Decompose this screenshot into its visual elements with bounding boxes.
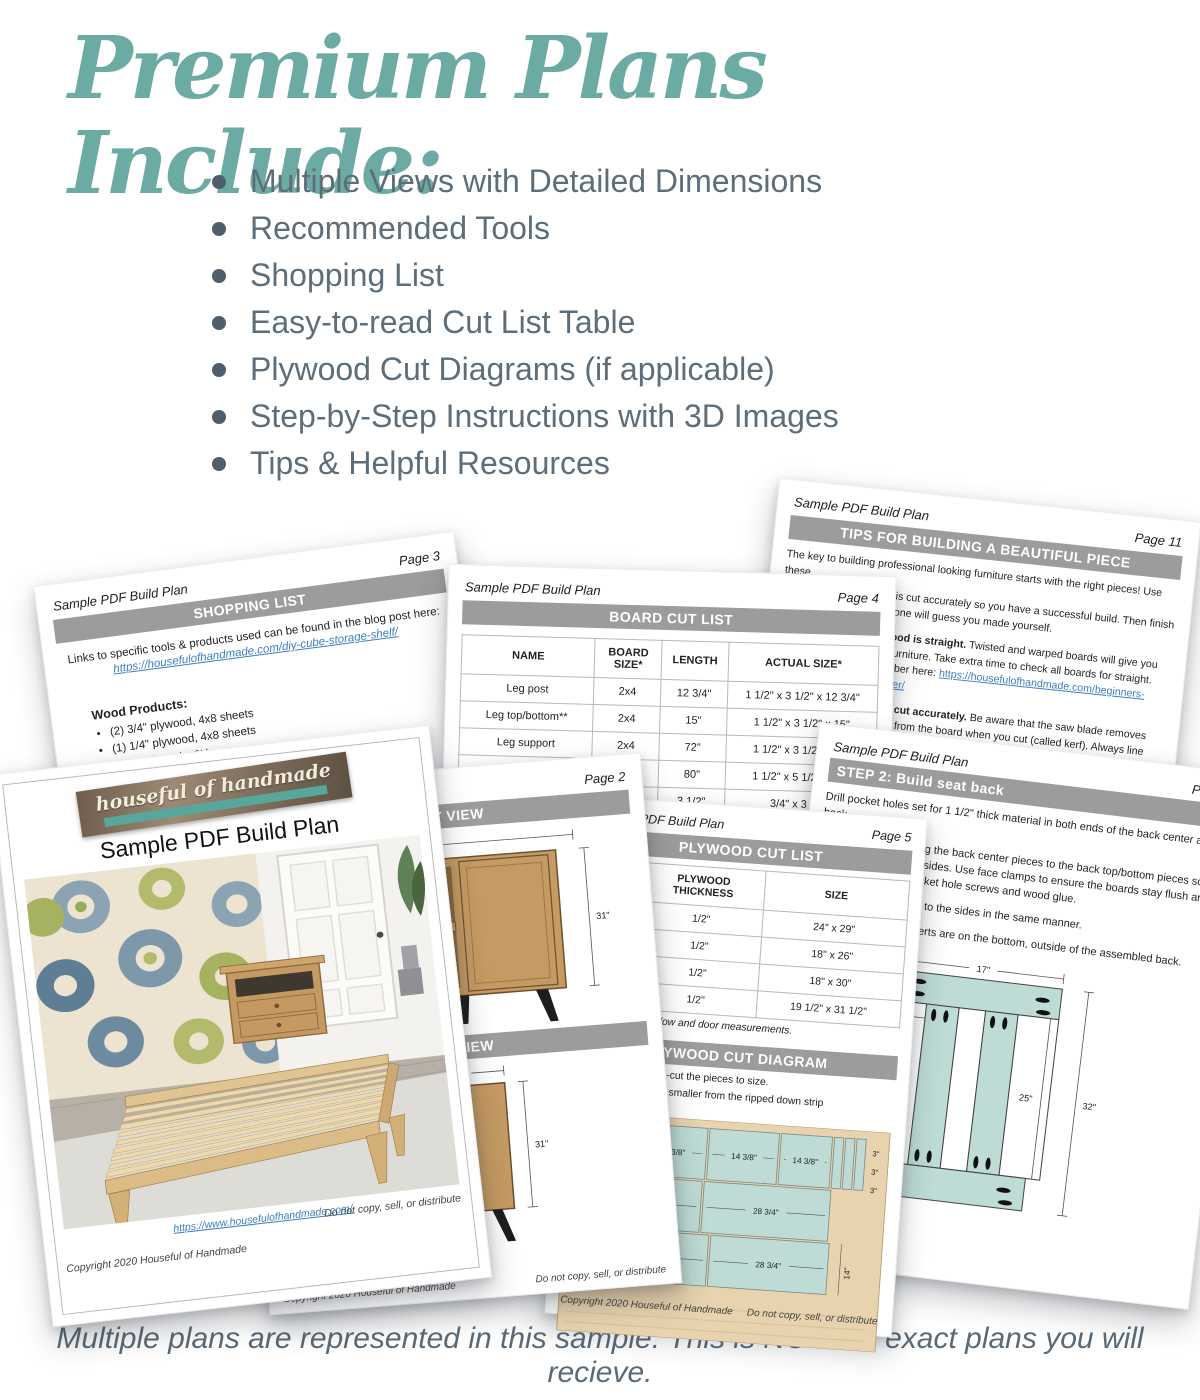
svg-text:14 3/8": 14 3/8" (792, 1156, 818, 1167)
svg-text:14": 14" (842, 1267, 852, 1280)
svg-text:28 3/4": 28 3/4" (753, 1207, 779, 1218)
plan-title: Sample PDF Build Plan (465, 579, 601, 598)
bullet-icon (212, 316, 226, 330)
column-header: BOARD SIZE* (594, 638, 662, 679)
bullet-icon (212, 410, 226, 424)
svg-text:3": 3" (871, 1168, 879, 1177)
copyright: Copyright 2020 Houseful of Handmade (66, 1243, 248, 1275)
page-number: Page 4 (837, 590, 879, 606)
feature-item: Shopping List (212, 252, 839, 299)
page-number: Page 5 (871, 828, 912, 845)
feature-item: Tips & Helpful Resources (212, 440, 839, 487)
bullet-icon (212, 269, 226, 283)
bed-frame-photo (24, 835, 459, 1230)
bullet-icon (212, 175, 226, 189)
promo-graphic: Premium Plans Include: Multiple Views wi… (0, 0, 1200, 1400)
feature-item: Recommended Tools (212, 205, 839, 252)
page-number: Page 2 (584, 769, 626, 787)
svg-text:28 3/4": 28 3/4" (755, 1260, 781, 1271)
column-header: LENGTH (661, 640, 729, 681)
svg-text:3": 3" (872, 1149, 880, 1158)
column-header: ACTUAL SIZE* (728, 642, 879, 685)
page-number: Page 11 (1134, 530, 1183, 550)
svg-text:25": 25" (1018, 1092, 1033, 1104)
svg-text:3": 3" (870, 1186, 878, 1195)
feature-item: Easy-to-read Cut List Table (212, 299, 839, 346)
page-number: Page 7 (1191, 782, 1200, 802)
column-header: NAME (461, 635, 595, 678)
feature-item: Plywood Cut Diagrams (if applicable) (212, 346, 839, 393)
cover-frame: houseful of handmade Sample PDF Build Pl… (2, 737, 480, 1315)
sample-page-cover: houseful of handmade Sample PDF Build Pl… (0, 725, 492, 1327)
svg-text:32": 32" (1082, 1101, 1097, 1113)
bullet-icon (212, 457, 226, 471)
distribution-notice: Do not copy, sell, or distribute (535, 1264, 666, 1285)
feature-item: Multiple Views with Detailed Dimensions (212, 158, 839, 205)
svg-text:31": 31" (596, 910, 610, 921)
svg-text:14 3/8": 14 3/8" (731, 1152, 757, 1163)
page-number: Page 3 (398, 548, 441, 568)
feature-item: Step-by-Step Instructions with 3D Images (212, 393, 839, 440)
bullet-icon (212, 363, 226, 377)
svg-text:17": 17" (976, 964, 991, 976)
svg-text:31": 31" (535, 1139, 549, 1150)
feature-list: Multiple Views with Detailed Dimensions … (212, 158, 839, 487)
bullet-icon (212, 222, 226, 236)
